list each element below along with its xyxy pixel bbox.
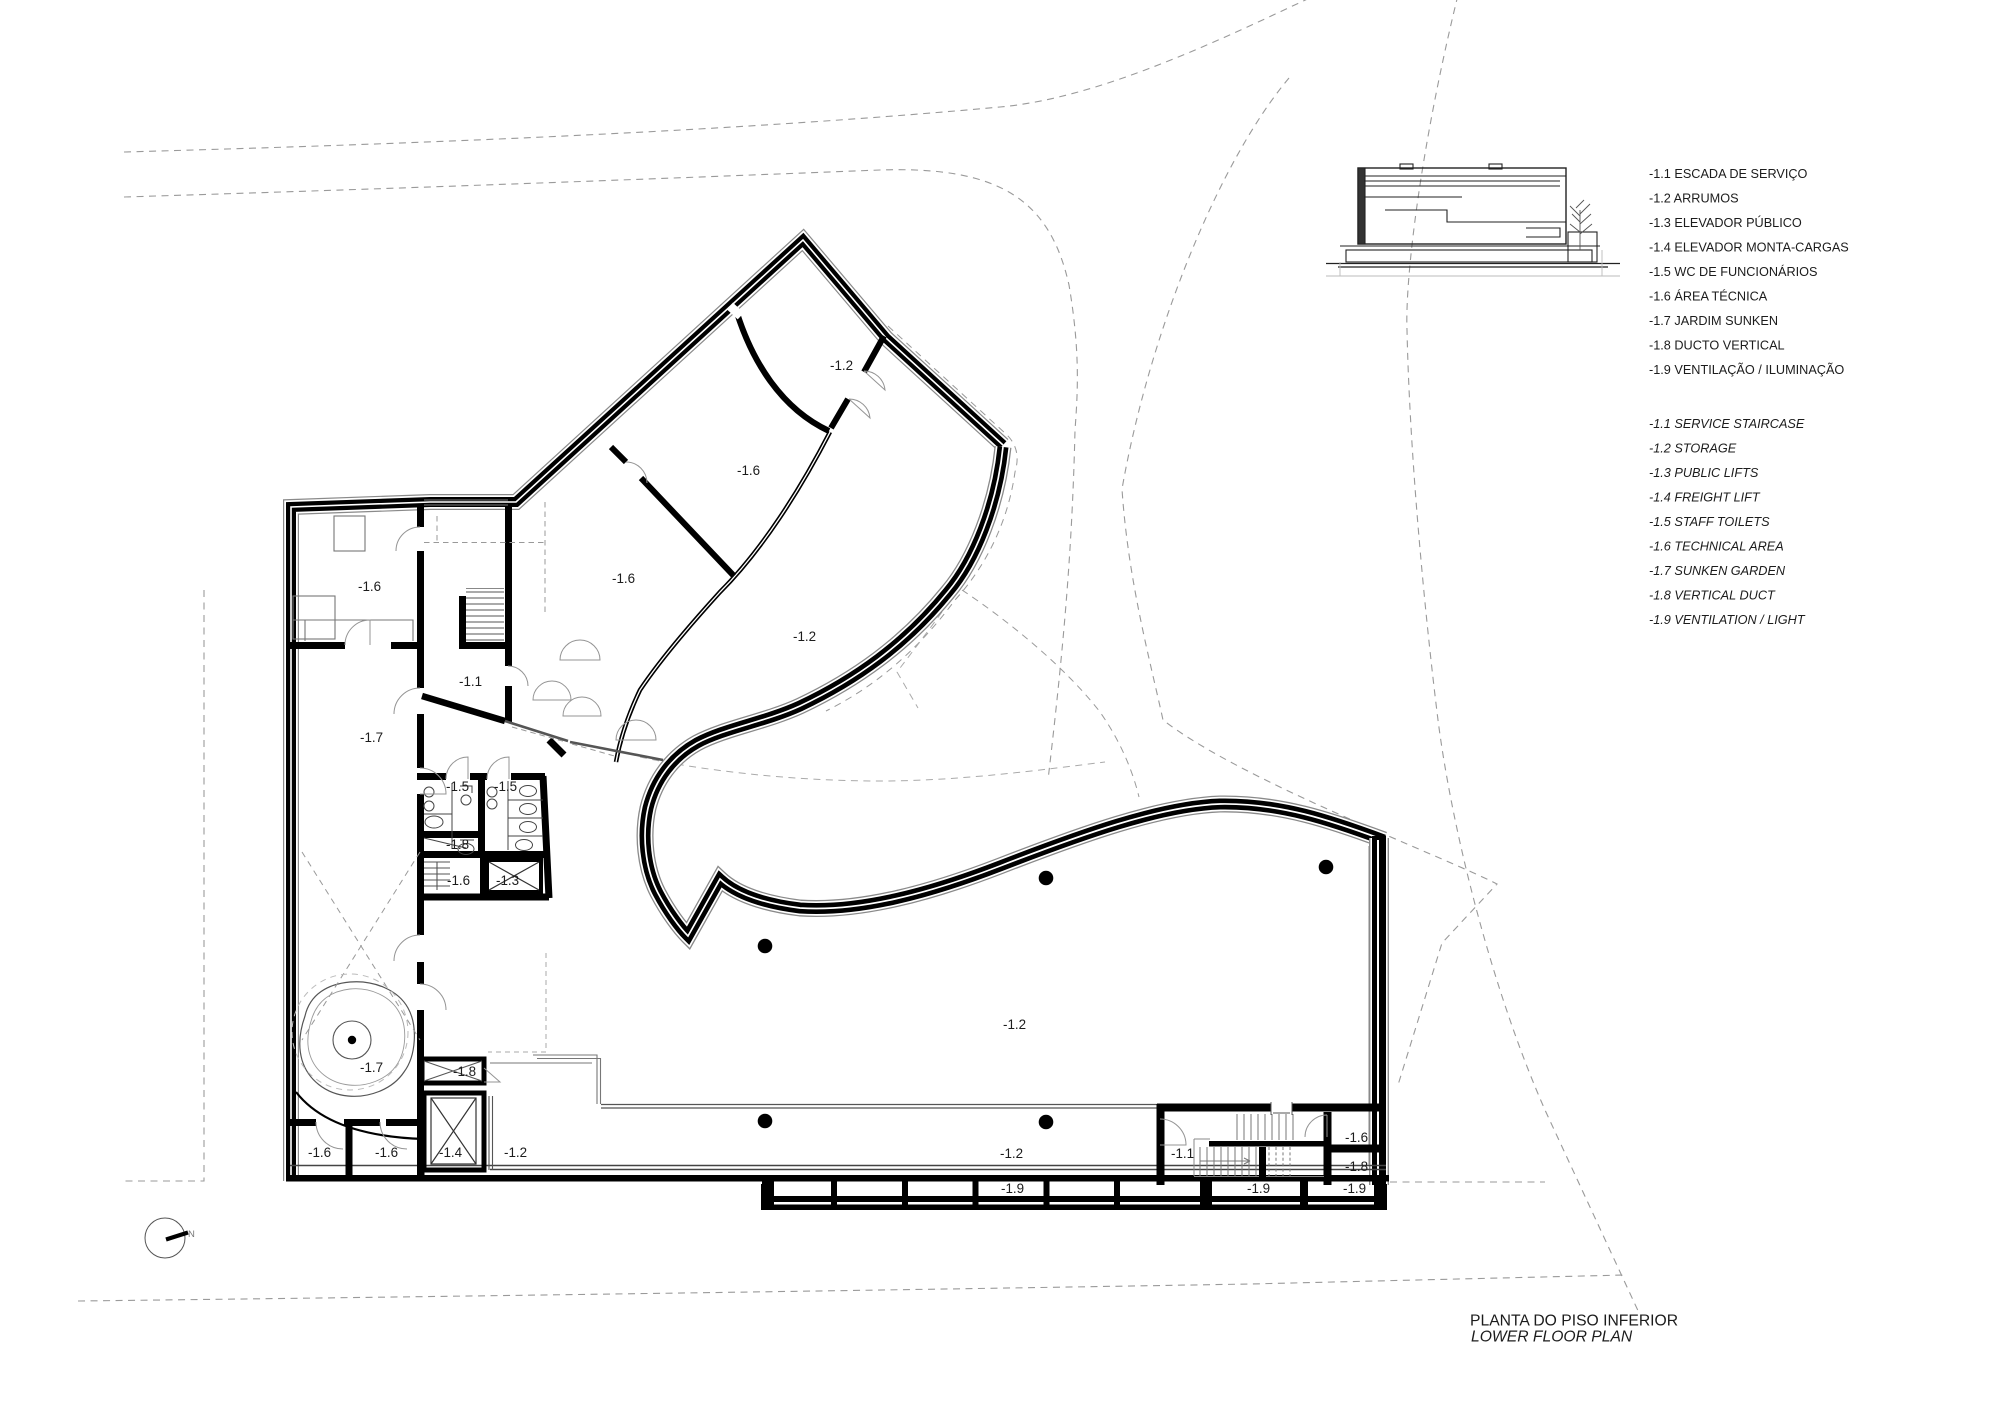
svg-text:-1.2: -1.2 [830, 358, 853, 373]
svg-text:-1.2: -1.2 [504, 1145, 527, 1160]
svg-text:-1.2: -1.2 [1000, 1146, 1023, 1161]
svg-text:-1.1: -1.1 [459, 674, 482, 689]
svg-text:-1.2: -1.2 [1003, 1017, 1026, 1032]
svg-text:-1.6: -1.6 [308, 1145, 331, 1160]
svg-text:-1.6: -1.6 [375, 1145, 398, 1160]
svg-text:-1.6: -1.6 [612, 571, 635, 586]
svg-text:-1.8 VERTICAL DUCT: -1.8 VERTICAL DUCT [1649, 589, 1776, 603]
svg-text:-1.1: -1.1 [1171, 1146, 1194, 1161]
svg-text:-1.9 VENTILAÇÃO / ILUMINAÇÃO: -1.9 VENTILAÇÃO / ILUMINAÇÃO [1649, 363, 1844, 377]
svg-text:-1.1 ESCADA DE SERVIÇO: -1.1 ESCADA DE SERVIÇO [1649, 167, 1808, 181]
svg-text:-1.7 JARDIM SUNKEN: -1.7 JARDIM SUNKEN [1649, 314, 1778, 328]
svg-text:-1.4 ELEVADOR MONTA-CARGAS: -1.4 ELEVADOR MONTA-CARGAS [1649, 241, 1849, 255]
svg-text:-1.1 SERVICE STAIRCASE: -1.1 SERVICE STAIRCASE [1649, 417, 1805, 431]
svg-text:-1.6: -1.6 [358, 579, 381, 594]
svg-text:-1.4 FREIGHT LIFT: -1.4 FREIGHT LIFT [1649, 491, 1761, 505]
svg-text:-1.6: -1.6 [447, 873, 470, 888]
svg-text:-1.8 DUCTO VERTICAL: -1.8 DUCTO VERTICAL [1649, 339, 1785, 353]
svg-text:-1.2: -1.2 [793, 629, 816, 644]
svg-text:-1.3 PUBLIC LIFTS: -1.3 PUBLIC LIFTS [1649, 466, 1759, 480]
svg-text:-1.6: -1.6 [1345, 1130, 1368, 1145]
svg-text:-1.5 WC DE FUNCIONÁRIOS: -1.5 WC DE FUNCIONÁRIOS [1649, 264, 1817, 279]
svg-text:-1.6: -1.6 [737, 463, 760, 478]
svg-text:-1.3: -1.3 [496, 873, 519, 888]
svg-text:-1.6 ÁREA TÉCNICA: -1.6 ÁREA TÉCNICA [1649, 289, 1768, 304]
svg-text:N: N [188, 1229, 195, 1240]
svg-text:-1.7 SUNKEN GARDEN: -1.7 SUNKEN GARDEN [1649, 564, 1786, 578]
svg-text:-1.4: -1.4 [439, 1145, 463, 1160]
svg-text:-1.2 ARRUMOS: -1.2 ARRUMOS [1649, 192, 1739, 206]
svg-text:-1.8: -1.8 [453, 1064, 476, 1079]
svg-text:-1.7: -1.7 [360, 730, 383, 745]
svg-text:LOWER FLOOR PLAN: LOWER FLOOR PLAN [1471, 1329, 1633, 1346]
svg-text:-1.6 TECHNICAL AREA: -1.6 TECHNICAL AREA [1649, 540, 1784, 554]
svg-text:-1.9: -1.9 [1001, 1181, 1024, 1196]
svg-text:-1.3 ELEVADOR PÚBLICO: -1.3 ELEVADOR PÚBLICO [1649, 215, 1802, 230]
svg-text:PLANTA DO PISO INFERIOR: PLANTA DO PISO INFERIOR [1470, 1313, 1678, 1330]
svg-text:-1.9: -1.9 [1343, 1181, 1366, 1196]
svg-text:-1.9: -1.9 [1247, 1181, 1270, 1196]
svg-text:-1.8: -1.8 [446, 837, 469, 852]
svg-text:-1.9 VENTILATION / LIGHT: -1.9 VENTILATION / LIGHT [1649, 613, 1806, 627]
svg-text:-1.5: -1.5 [494, 779, 517, 794]
svg-text:-1.5: -1.5 [446, 779, 469, 794]
svg-text:-1.5 STAFF TOILETS: -1.5 STAFF TOILETS [1649, 515, 1770, 529]
svg-text:-1.2 STORAGE: -1.2 STORAGE [1649, 442, 1737, 456]
svg-text:-1.7: -1.7 [360, 1060, 383, 1075]
svg-text:-1.8: -1.8 [1345, 1159, 1368, 1174]
